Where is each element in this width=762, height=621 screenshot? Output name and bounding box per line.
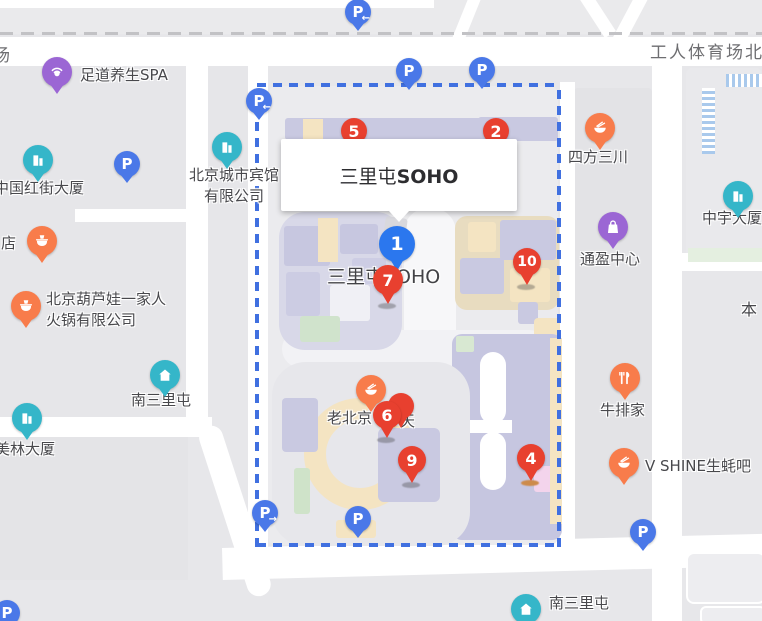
road bbox=[0, 37, 762, 66]
place-label-card-notch bbox=[389, 211, 409, 222]
arrow-left-icon: ← bbox=[362, 14, 370, 24]
parking-pin-arrow-left[interactable]: P← bbox=[246, 88, 272, 114]
poi-label-tongying-center: 通盈中心 bbox=[580, 249, 640, 270]
poi-pin-meilin-daxia[interactable] bbox=[12, 403, 42, 433]
parking-pin-plain[interactable]: P bbox=[630, 519, 656, 545]
building bbox=[686, 552, 762, 604]
road bbox=[186, 58, 208, 432]
poi-pin-niupaijia[interactable] bbox=[610, 363, 640, 393]
map-canvas[interactable]: 三里屯SOHO工人体育场北场本天足道养生SPA中国红街大厦北京城市宾馆有限公司店… bbox=[0, 0, 762, 621]
building bbox=[294, 468, 310, 514]
poi-pin-nansanlitun-mid[interactable] bbox=[150, 360, 180, 390]
building bbox=[460, 258, 504, 294]
building-hatched bbox=[726, 74, 762, 87]
place-label-card-title: 三里屯SOHO bbox=[340, 162, 459, 189]
poi-pin-beijing-city-hotel[interactable] bbox=[212, 132, 242, 162]
poi-pin-partial-dian[interactable] bbox=[27, 226, 57, 256]
road bbox=[480, 352, 506, 424]
parking-pin-arrow-right[interactable]: P→ bbox=[252, 500, 278, 526]
arrow-left-icon: ← bbox=[263, 103, 271, 113]
result-marker-9[interactable]: 9 bbox=[398, 446, 426, 474]
parking-pin-plain[interactable]: P bbox=[396, 58, 422, 84]
building bbox=[468, 222, 496, 252]
poi-label-vshine-oyster-bar: V SHINE生蚝吧 bbox=[645, 456, 751, 477]
selection-boundary-right bbox=[557, 83, 561, 547]
place-label-card[interactable]: 三里屯SOHO bbox=[281, 139, 517, 211]
poi-label-meilin-daxia: 美林大厦 bbox=[0, 439, 55, 460]
selection-boundary-bottom bbox=[257, 543, 561, 547]
result-marker-4[interactable]: 4 bbox=[517, 444, 545, 472]
poi-pin-sifang-sanchuan[interactable] bbox=[585, 113, 615, 143]
parking-pin-plain[interactable]: P bbox=[0, 600, 20, 621]
building bbox=[700, 606, 762, 621]
poi-pin-zudao-yangsheng-spa[interactable] bbox=[42, 57, 72, 87]
building bbox=[286, 272, 320, 316]
city-block bbox=[686, 68, 762, 262]
arrow-right-icon: → bbox=[269, 515, 277, 525]
poi-pin-huluwa-hotpot[interactable] bbox=[11, 291, 41, 321]
building bbox=[303, 119, 323, 140]
building bbox=[688, 248, 762, 262]
parking-pin-arrow-left[interactable]: P← bbox=[345, 0, 371, 25]
result-marker-1[interactable]: 1 bbox=[379, 226, 415, 262]
road bbox=[480, 432, 506, 490]
city-block bbox=[686, 300, 762, 538]
poi-label-niupaijia: 牛排家 bbox=[600, 400, 645, 421]
poi-pin-zhongguo-hongjie-daxia[interactable] bbox=[23, 145, 53, 175]
result-marker-7[interactable]: 7 bbox=[373, 265, 403, 295]
building bbox=[456, 336, 474, 352]
building bbox=[282, 398, 318, 452]
building-hatched bbox=[702, 88, 715, 154]
parking-pin-plain[interactable]: P bbox=[345, 506, 371, 532]
road-label-partial-west: 场 bbox=[0, 46, 10, 67]
admin-boundary-dashed bbox=[0, 32, 762, 35]
road bbox=[75, 209, 197, 222]
label-partial-ben: 本 bbox=[741, 300, 757, 320]
poi-label-huluwa-hotpot: 北京葫芦娃一家人火锅有限公司 bbox=[46, 289, 166, 331]
building bbox=[318, 218, 338, 262]
building bbox=[300, 316, 340, 342]
selection-boundary-left bbox=[255, 83, 259, 547]
poi-pin-tongying-center[interactable] bbox=[598, 212, 628, 242]
poi-label-sifang-sanchuan: 四方三川 bbox=[568, 147, 628, 168]
result-marker-10[interactable]: 10 bbox=[513, 248, 541, 276]
poi-label-nansanlitun-south: 南三里屯 bbox=[549, 593, 609, 614]
parking-pin-plain[interactable]: P bbox=[469, 57, 495, 83]
poi-pin-nansanlitun-south[interactable] bbox=[511, 594, 541, 621]
poi-pin-zhongyu-daxia[interactable] bbox=[723, 181, 753, 211]
building bbox=[340, 224, 378, 254]
result-marker-6[interactable]: 6 bbox=[373, 401, 401, 429]
poi-pin-vshine-oyster-bar[interactable] bbox=[609, 448, 639, 478]
poi-label-beijing-city-hotel: 北京城市宾馆有限公司 bbox=[189, 165, 279, 207]
parking-pin-plain[interactable]: P bbox=[114, 151, 140, 177]
road-label-gongti-north: 工人体育场北 bbox=[650, 43, 762, 64]
poi-label-partial-dian: 店 bbox=[1, 233, 16, 254]
city-block bbox=[0, 580, 762, 621]
poi-label-zudao-yangsheng-spa: 足道养生SPA bbox=[80, 65, 168, 86]
